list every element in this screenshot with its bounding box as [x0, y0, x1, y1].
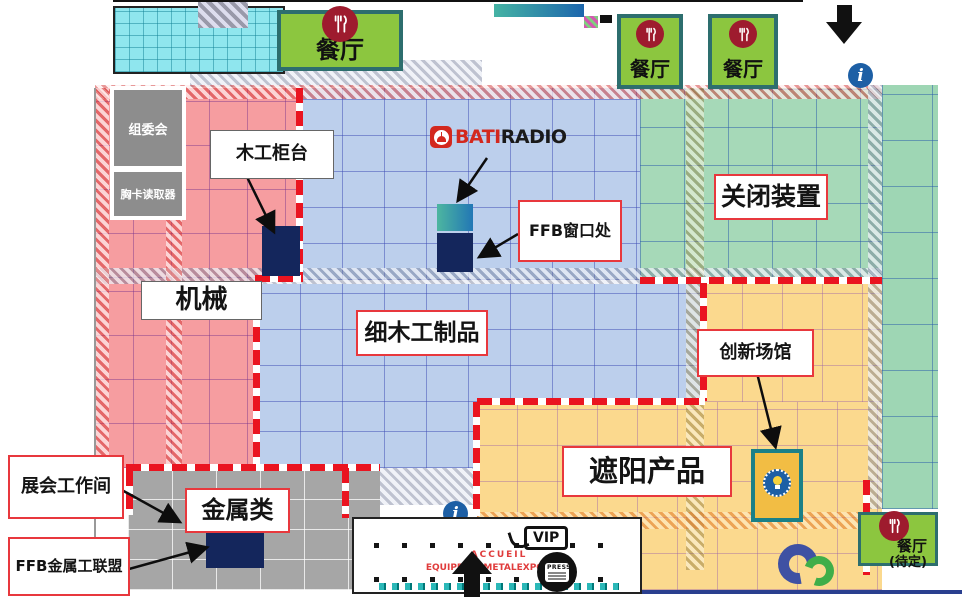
- entrance-hall: ACCUEIL EQUIPBAIE METALEXPO 2018: [352, 517, 642, 594]
- exhibition-workshop-label: 展会工作间: [8, 455, 124, 519]
- machinery-zone-label: 机械: [141, 281, 262, 320]
- arrow-woodworking-counter: [247, 177, 273, 230]
- column-dots: [374, 543, 624, 548]
- arrow-batiradio: [459, 158, 487, 199]
- vip-badge: VIP: [524, 526, 568, 550]
- restaurant-sign-2: 餐厅: [617, 14, 683, 89]
- innovation-hall-label: 创新场馆: [697, 329, 814, 377]
- entrance-down-arrow-icon: [826, 5, 862, 44]
- restaurant-pending-label: (待定): [889, 551, 927, 570]
- sun-protection-zone-label: 遮阳产品: [562, 446, 732, 497]
- joinery-zone-label: 细木工制品: [356, 310, 488, 356]
- ffb-window-label: FFB窗口处: [518, 200, 622, 262]
- restaurant-sign-4: 餐厅 (待定): [858, 512, 938, 566]
- brand-radio: RADIO: [501, 126, 567, 148]
- floor-plan-canvas: 机械 细木工制品 关闭装置 遮阳产品 金属类 木工柜台 FFB窗口处 创新场馆 …: [0, 0, 962, 597]
- arrow-innovation-hall: [757, 373, 775, 445]
- arrow-ffb-metal-alliance: [118, 548, 205, 572]
- fork-knife-icon: [636, 20, 664, 48]
- fork-knife-icon: [322, 6, 358, 42]
- ffb-metal-alliance-label: FFB金属工联盟: [8, 537, 130, 596]
- column-dots: [374, 577, 624, 582]
- restaurant-sign-3: 餐厅: [708, 14, 778, 89]
- woodworking-counter-label: 木工柜台: [210, 130, 334, 179]
- arrow-ffb-window: [481, 234, 518, 256]
- arrow-exhibition-workshop: [120, 489, 178, 521]
- badge-reader-box: 胸卡读取器: [114, 172, 182, 216]
- equipbaie-logo: [778, 544, 838, 594]
- radio-dome-icon: [430, 126, 452, 148]
- fork-knife-icon: [729, 20, 757, 48]
- brand-bati: BATI: [455, 126, 501, 148]
- turnstile-strip: [379, 583, 619, 590]
- metal-zone-label: 金属类: [185, 488, 290, 533]
- closing-devices-zone-label: 关闭装置: [714, 174, 828, 220]
- fork-knife-icon: [879, 511, 909, 541]
- info-icon: i: [848, 63, 873, 88]
- press-icon: PRESS: [537, 552, 577, 592]
- entrance-up-arrow-icon: [452, 551, 492, 597]
- batiradio-logo: BATI RADIO: [430, 125, 567, 149]
- organizing-committee-box: 组委会: [114, 90, 182, 166]
- restaurant-sign-1: 餐厅: [277, 10, 403, 71]
